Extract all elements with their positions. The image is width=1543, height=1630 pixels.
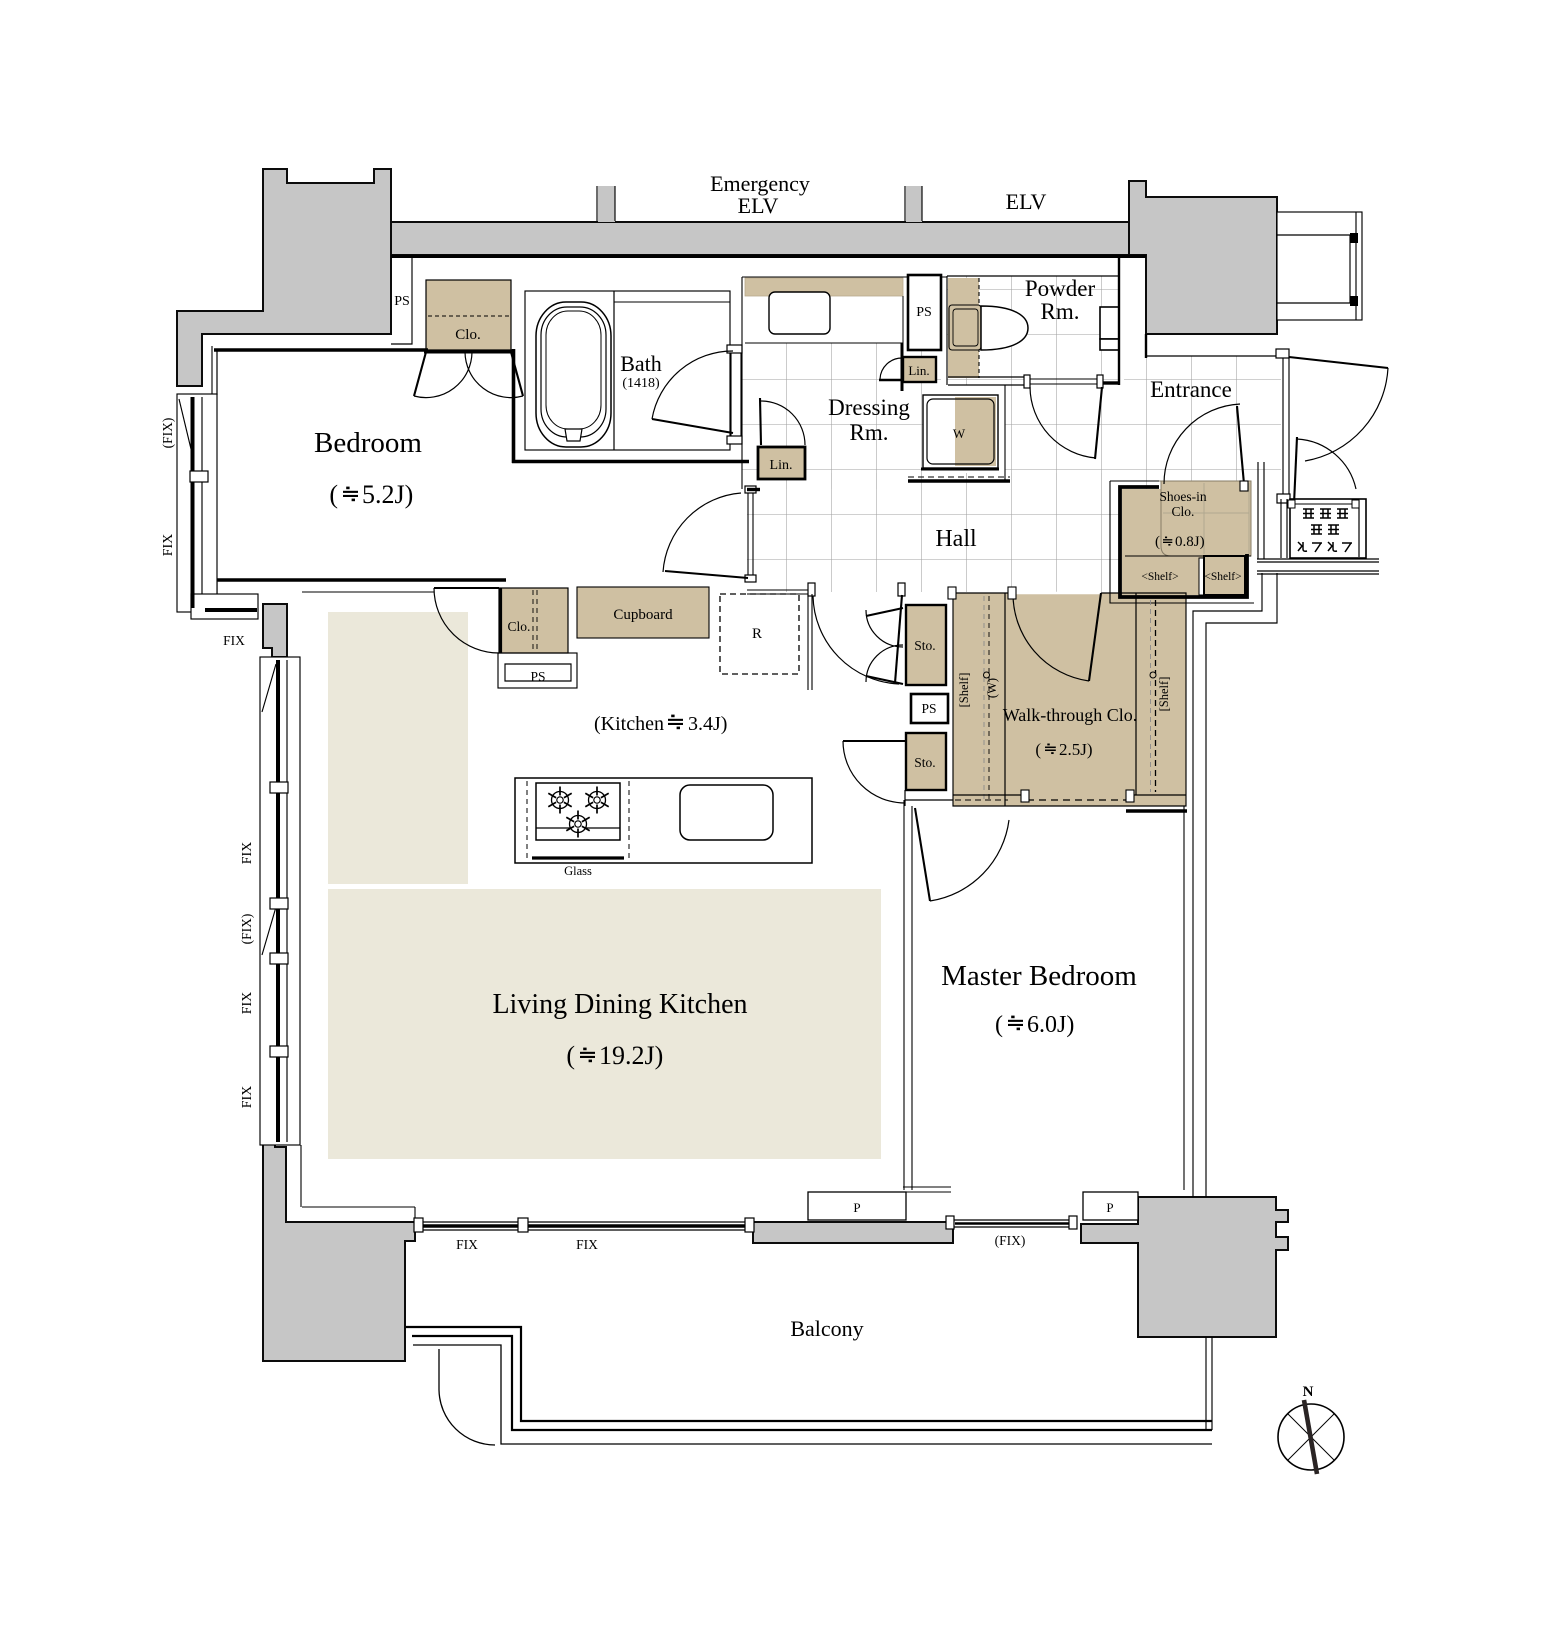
svg-text:ELV: ELV — [738, 193, 779, 218]
svg-text:W: W — [953, 426, 966, 441]
svg-text:Walk-through Clo.: Walk-through Clo. — [1003, 705, 1138, 725]
svg-text:FIX: FIX — [240, 842, 255, 865]
svg-text:(FIX): (FIX) — [995, 1233, 1026, 1248]
svg-text:FIX: FIX — [456, 1237, 478, 1252]
svg-text:PS: PS — [394, 294, 410, 309]
svg-text:2.5J): 2.5J) — [1059, 740, 1093, 759]
svg-text:Master Bedroom: Master Bedroom — [941, 960, 1137, 992]
svg-text:5.2J): 5.2J) — [362, 480, 413, 509]
svg-text:(Kitchen: (Kitchen — [594, 713, 664, 735]
svg-text:[Shelf]: [Shelf] — [957, 673, 971, 708]
svg-text:(1418): (1418) — [622, 376, 660, 391]
svg-text:FIX: FIX — [576, 1237, 598, 1252]
svg-text:Sto.: Sto. — [914, 755, 935, 770]
svg-text:Clo.: Clo. — [1172, 504, 1195, 519]
svg-text:Cupboard: Cupboard — [613, 607, 673, 623]
svg-text:Dressing: Dressing — [828, 395, 910, 420]
svg-text:N: N — [1303, 1384, 1314, 1400]
svg-text:(W): (W) — [985, 678, 999, 698]
svg-text:R: R — [752, 626, 762, 642]
svg-text:PS: PS — [916, 305, 932, 320]
svg-text:FIX: FIX — [240, 1086, 255, 1109]
svg-text:(: ( — [1155, 534, 1160, 550]
svg-text:Clo.: Clo. — [508, 619, 531, 634]
svg-text:Entrance: Entrance — [1150, 377, 1232, 402]
svg-text:Lin.: Lin. — [770, 458, 793, 473]
svg-text:FIX: FIX — [161, 534, 176, 557]
svg-text:6.0J): 6.0J) — [1027, 1012, 1074, 1038]
svg-text:PS: PS — [530, 669, 545, 684]
svg-text:Bedroom: Bedroom — [314, 427, 422, 459]
svg-text:<Shelf>: <Shelf> — [1141, 571, 1178, 583]
svg-text:[Shelf]: [Shelf] — [1157, 677, 1171, 712]
svg-text:(: ( — [1035, 740, 1041, 759]
svg-text:Shoes-in: Shoes-in — [1159, 489, 1207, 504]
svg-text:Living Dining Kitchen: Living Dining Kitchen — [492, 989, 747, 1020]
svg-text:3.4J): 3.4J) — [688, 713, 727, 735]
svg-text:(FIX): (FIX) — [160, 418, 175, 449]
svg-text:Powder: Powder — [1025, 276, 1096, 301]
svg-text:(: ( — [329, 480, 338, 509]
svg-text:Hall: Hall — [935, 526, 977, 552]
svg-text:Glass: Glass — [564, 864, 592, 878]
svg-text:0.8J): 0.8J) — [1175, 534, 1205, 550]
svg-text:<Shelf>: <Shelf> — [1204, 571, 1241, 583]
svg-text:FIX: FIX — [223, 633, 245, 648]
svg-text:(: ( — [566, 1041, 575, 1070]
svg-text:P: P — [1106, 1200, 1113, 1215]
svg-text:Clo.: Clo. — [455, 327, 480, 343]
svg-text:FIX: FIX — [240, 992, 255, 1015]
svg-text:Rm.: Rm. — [1041, 299, 1080, 324]
svg-text:Lin.: Lin. — [908, 363, 929, 378]
svg-text:PS: PS — [921, 701, 936, 716]
svg-text:Rm.: Rm. — [850, 420, 889, 445]
svg-text:(FIX): (FIX) — [239, 914, 254, 945]
svg-text:Bath: Bath — [620, 351, 662, 376]
svg-text:19.2J): 19.2J) — [599, 1041, 663, 1070]
svg-text:P: P — [853, 1200, 860, 1215]
svg-text:(: ( — [995, 1012, 1003, 1038]
svg-text:Sto.: Sto. — [914, 638, 935, 653]
svg-text:Balcony: Balcony — [790, 1316, 863, 1341]
svg-text:ELV: ELV — [1006, 189, 1047, 214]
